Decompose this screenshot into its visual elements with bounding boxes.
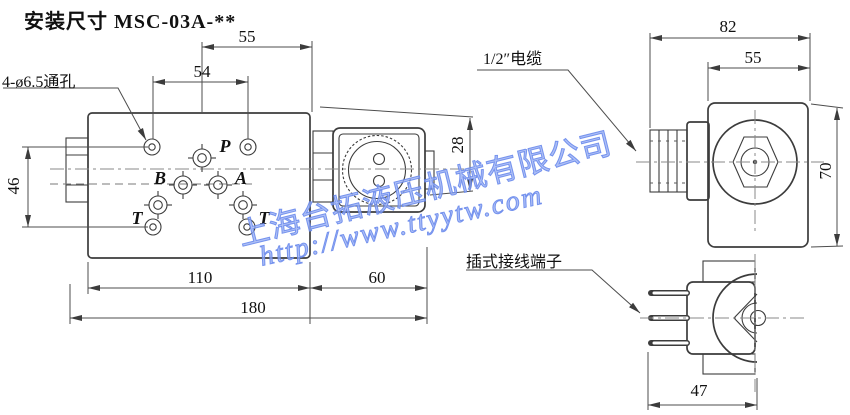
dim-bottom-60: 60 [359, 268, 395, 288]
dim-end-47: 47 [681, 381, 717, 401]
drawing-title: 安装尺寸 MSC-03A-** [24, 5, 236, 34]
dim-side-70: 70 [816, 153, 836, 189]
port-label-b: B [152, 168, 168, 189]
port-label-p: P [217, 136, 233, 157]
dim-bottom-110: 110 [182, 268, 218, 288]
dim-top-55: 55 [229, 27, 265, 47]
installation-drawing: 安装尺寸 MSC-03A-** 4-ø6.5通孔 55 54 46 28 110… [0, 0, 850, 415]
end-view [640, 254, 806, 392]
cable-callout: 1/2″电缆 [483, 45, 542, 69]
side-view [636, 103, 824, 247]
dim-left-46: 46 [4, 168, 24, 204]
terminal-callout-leader [466, 270, 640, 313]
mounting-hole-callout: 4-ø6.5通孔 [2, 68, 75, 92]
terminal-callout: 插式接线端子 [466, 248, 562, 272]
dim-bottom-180: 180 [235, 298, 271, 318]
dim-side-82: 82 [710, 17, 746, 37]
port-label-a: A [233, 168, 249, 189]
dim-top-54: 54 [184, 62, 220, 82]
hole-callout-leader [3, 88, 146, 140]
dim-side-55: 55 [735, 48, 771, 68]
port-label-t-left: T [129, 208, 145, 229]
